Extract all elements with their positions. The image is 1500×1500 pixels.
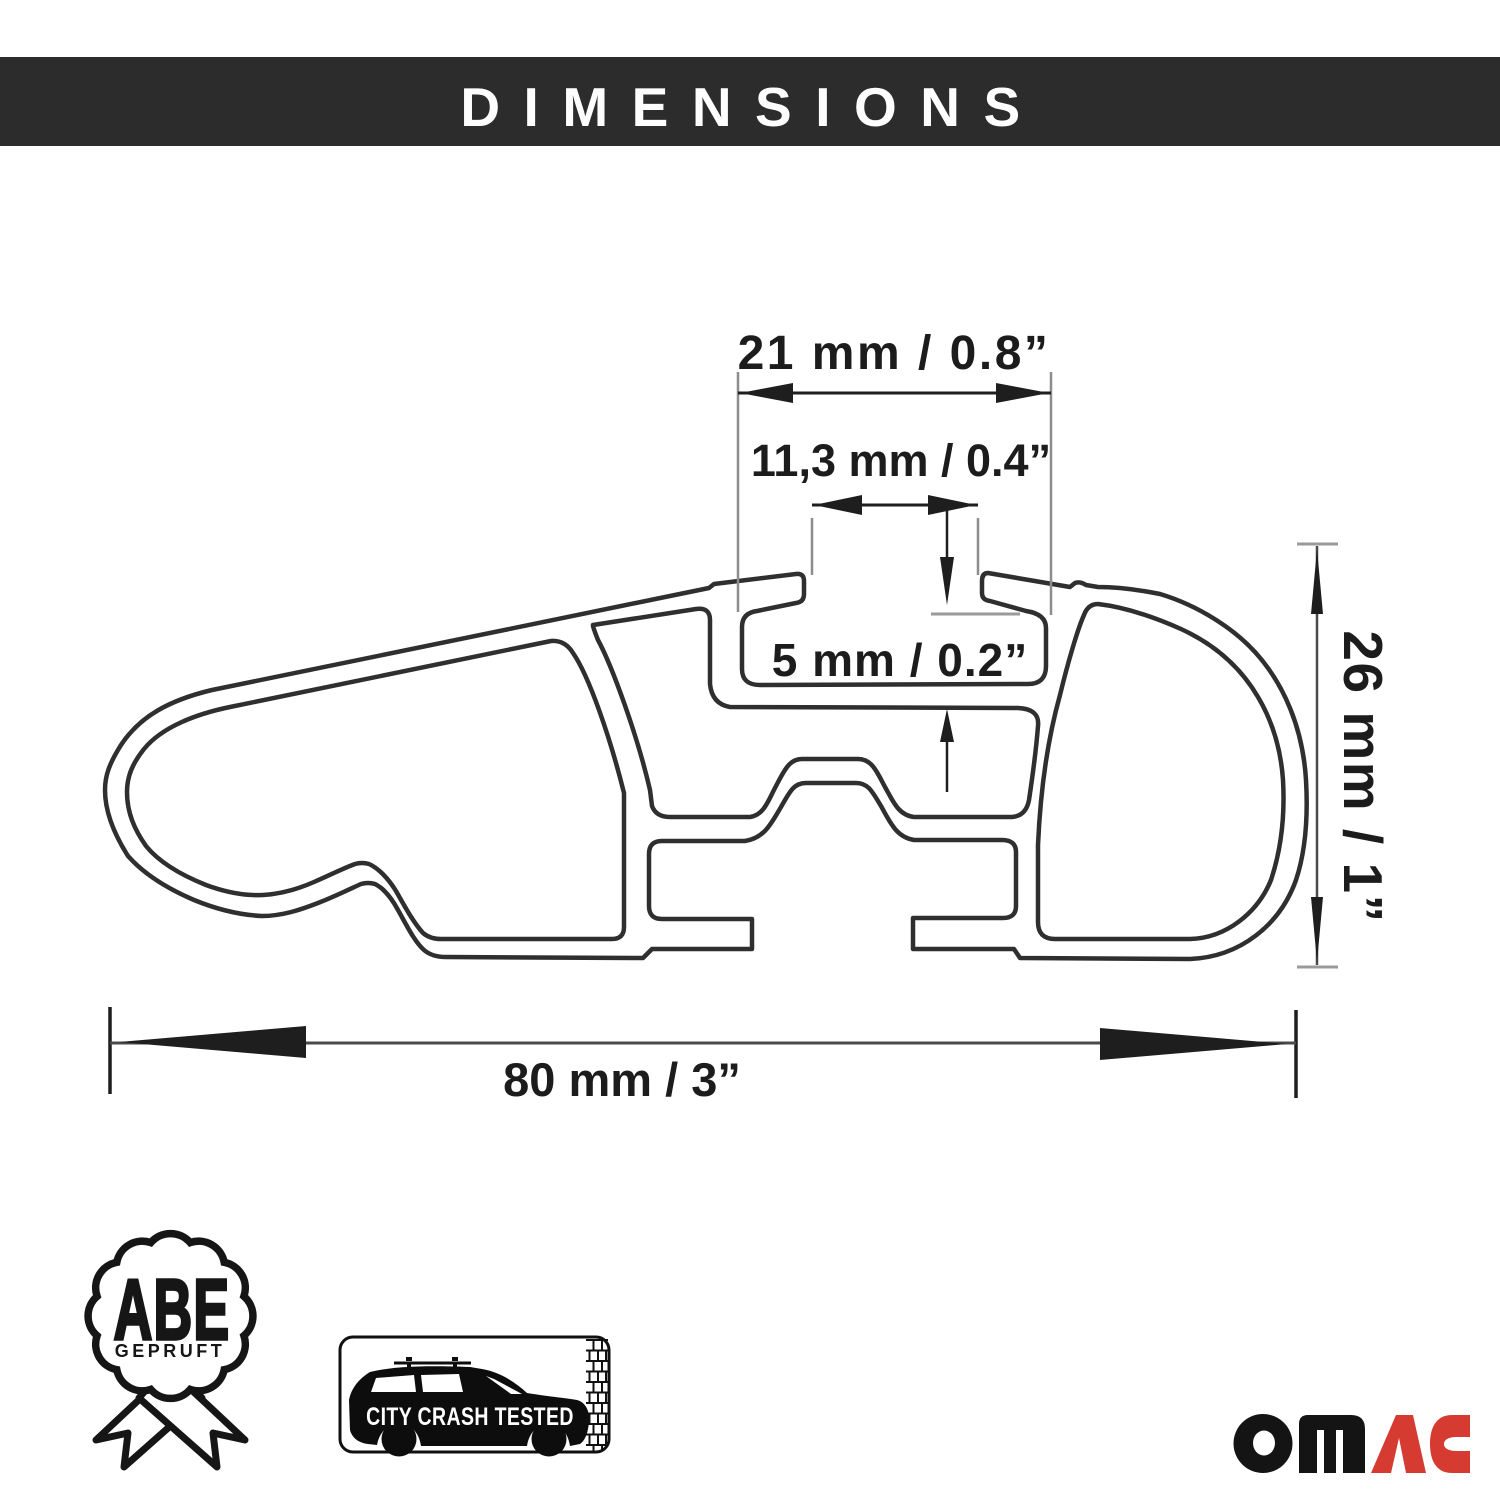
svg-text:CITY CRASH TESTED: CITY CRASH TESTED <box>366 1403 574 1431</box>
svg-text:11,3 mm / 0.4”: 11,3 mm / 0.4” <box>751 435 1051 486</box>
svg-text:80 mm / 3”: 80 mm / 3” <box>503 1053 741 1106</box>
svg-text:GEPRUFT: GEPRUFT <box>115 1341 226 1361</box>
svg-text:21 mm / 0.8”: 21 mm / 0.8” <box>738 327 1051 380</box>
svg-text:26 mm / 1”: 26 mm / 1” <box>1332 630 1394 923</box>
svg-text:DIMENSIONS: DIMENSIONS <box>460 76 1043 138</box>
svg-text:5 mm / 0.2”: 5 mm / 0.2” <box>772 634 1028 686</box>
